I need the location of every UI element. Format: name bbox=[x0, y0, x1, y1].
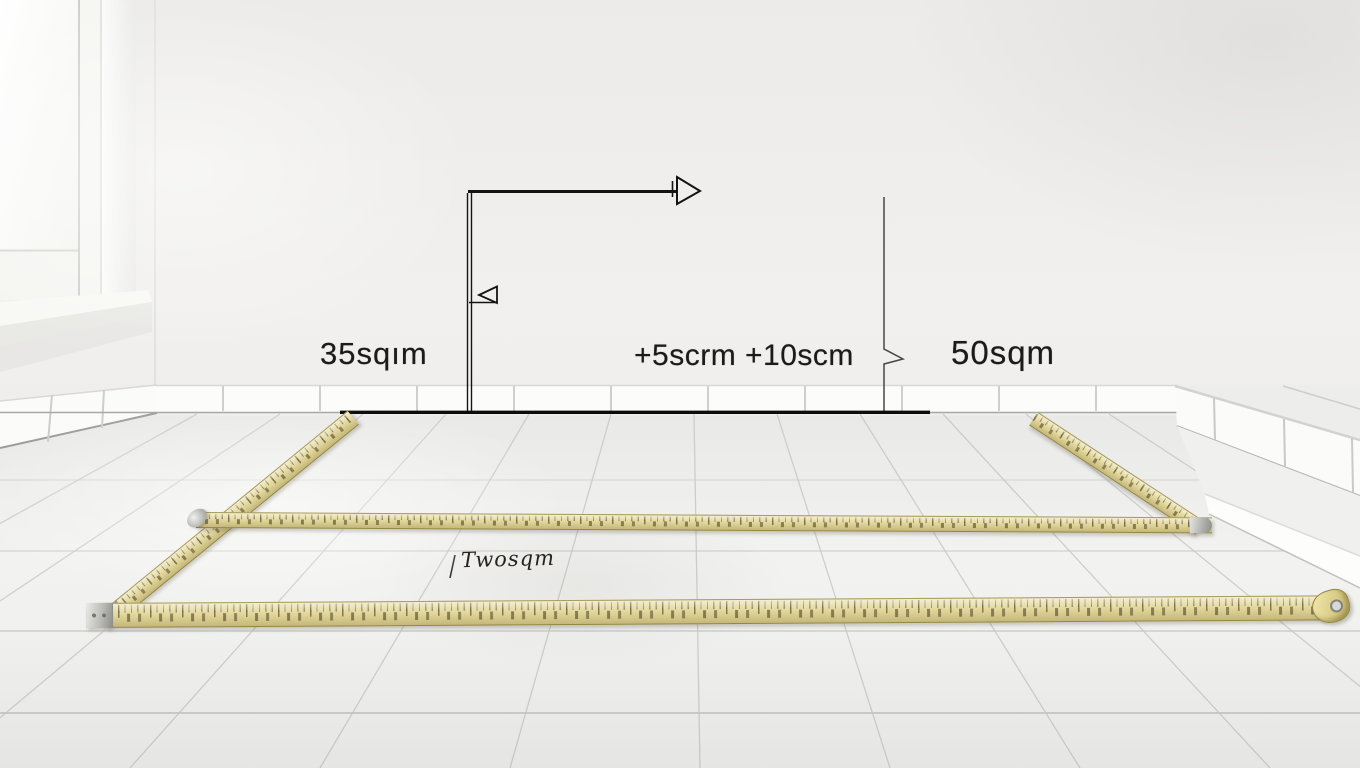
room-photo: 35sqım +5scrm +10scm 50sqm Twosqm bbox=[0, 0, 1360, 768]
window-stile bbox=[78, 0, 102, 302]
window bbox=[0, 0, 155, 385]
extension-line-right bbox=[884, 197, 903, 411]
right-arrowhead-icon bbox=[677, 177, 700, 204]
window-jamb bbox=[102, 0, 136, 314]
adjustment-label-center: +5scrm +10scm bbox=[634, 339, 854, 373]
floor-label-tick bbox=[450, 555, 455, 578]
floor-grout-fan bbox=[0, 414, 1360, 768]
tape-metal-tip bbox=[86, 603, 113, 628]
area-label-floor: Twosqm bbox=[461, 546, 556, 572]
wall-tile-band bbox=[0, 385, 1178, 449]
window-bottom-rail bbox=[0, 250, 78, 300]
tape-metal-cap bbox=[1190, 517, 1212, 533]
area-label-left: 35sqım bbox=[320, 336, 428, 372]
left-arrowhead-icon bbox=[479, 287, 497, 304]
tape-grommet bbox=[1329, 598, 1345, 614]
area-label-right: 50sqm bbox=[951, 334, 1055, 372]
scene-artwork bbox=[0, 0, 1360, 768]
